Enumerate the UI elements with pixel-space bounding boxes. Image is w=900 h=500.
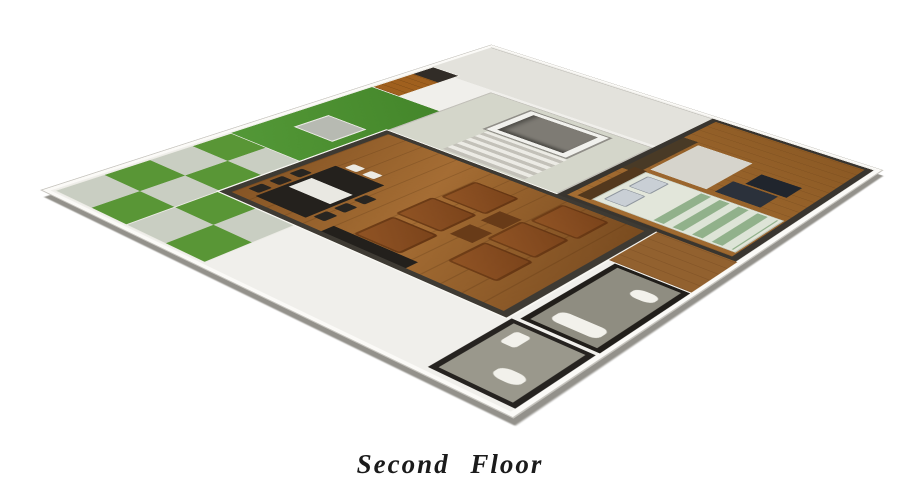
coffee-table xyxy=(450,224,492,243)
toilet xyxy=(627,288,662,305)
figure-second-floor-plan: Second Floor xyxy=(0,0,900,500)
toilet xyxy=(489,366,530,387)
table-runner xyxy=(289,178,353,204)
bathtub xyxy=(549,311,611,340)
pillow xyxy=(603,188,645,207)
sink xyxy=(499,331,532,348)
lawn-table xyxy=(294,115,367,142)
floor-plan-3d-render xyxy=(40,45,884,419)
figure-caption: Second Floor xyxy=(0,449,900,480)
